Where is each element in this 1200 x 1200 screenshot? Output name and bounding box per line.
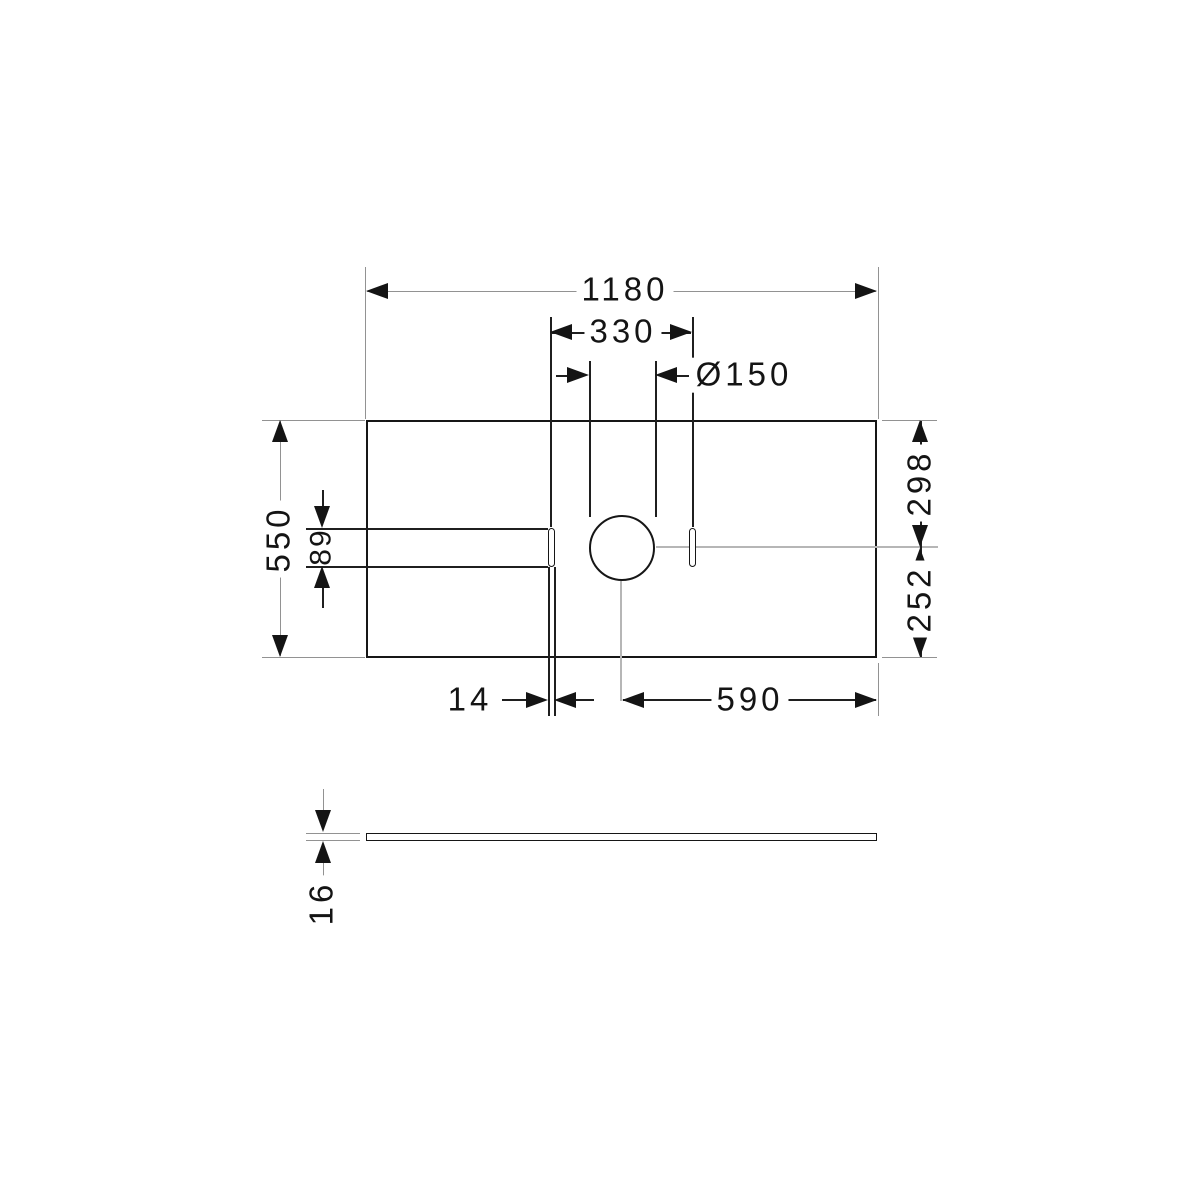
arrowhead-14-right [554, 692, 576, 708]
horizontal-centerline [656, 546, 938, 548]
arrowhead-16-top [315, 810, 331, 832]
slot-right [689, 528, 696, 567]
arrowhead-550-top [272, 420, 288, 442]
dim-label-slot-width: 14 [443, 683, 498, 718]
dim-label-slot-spacing: 330 [584, 315, 661, 350]
dim-label-overall-width: 1180 [577, 273, 674, 308]
reference-line-slot-bottom [306, 566, 548, 568]
dim-label-slot-length: 89 [305, 528, 337, 565]
extension-line-dia150-right [655, 361, 657, 517]
arrowhead-330-right [670, 324, 692, 340]
extension-line-1180-right [878, 267, 879, 419]
extension-line-16-top [306, 833, 360, 834]
side-view-plate-outline [366, 833, 877, 841]
extension-line-right-top [882, 420, 937, 421]
dim-label-hole-diameter: Ø150 [691, 358, 798, 393]
dim-label-depth-to-center-top: 298 [903, 444, 938, 521]
arrowhead-14-left [526, 692, 548, 708]
arrowhead-dia150-right [655, 367, 677, 383]
arrowhead-298-top [912, 420, 928, 442]
dim-line-16-bottom-tail [323, 861, 324, 877]
extension-line-14-left [548, 567, 550, 716]
arrowhead-dia150-left [567, 367, 589, 383]
arrowhead-330-left [550, 324, 572, 340]
dim-label-hole-center-to-right-edge: 590 [711, 683, 788, 718]
arrowhead-1180-left [366, 283, 388, 299]
arrowhead-298-bottom [912, 525, 928, 547]
reference-line-slot-top [306, 528, 548, 530]
extension-line-16-bottom [306, 840, 360, 841]
extension-line-right-bottom [882, 657, 937, 658]
arrowhead-16-bottom [315, 841, 331, 863]
extension-line-dia150-left [589, 361, 591, 517]
tap-hole-circle [589, 515, 655, 581]
slot-left [548, 528, 555, 567]
dim-label-depth-to-center-bottom: 252 [903, 560, 938, 637]
dim-label-plate-thickness: 16 [305, 876, 340, 931]
extension-line-590-right [878, 663, 879, 716]
dim-label-overall-depth: 550 [262, 500, 297, 577]
arrowhead-89-bottom [314, 566, 330, 588]
extension-line-330-left [550, 317, 552, 527]
arrowhead-590-right [855, 692, 877, 708]
arrowhead-89-top [314, 506, 330, 528]
arrowhead-1180-right [855, 283, 877, 299]
arrowhead-550-bottom [272, 635, 288, 657]
arrowhead-252-bottom [912, 635, 928, 657]
arrowhead-590-left [622, 692, 644, 708]
vertical-centerline [620, 581, 622, 701]
technical-drawing-canvas: 1180 330 Ø150 550 89 298 252 14 590 16 [0, 0, 1200, 1200]
extension-line-330-right [692, 317, 694, 527]
extension-line-550-bottom [262, 657, 365, 658]
